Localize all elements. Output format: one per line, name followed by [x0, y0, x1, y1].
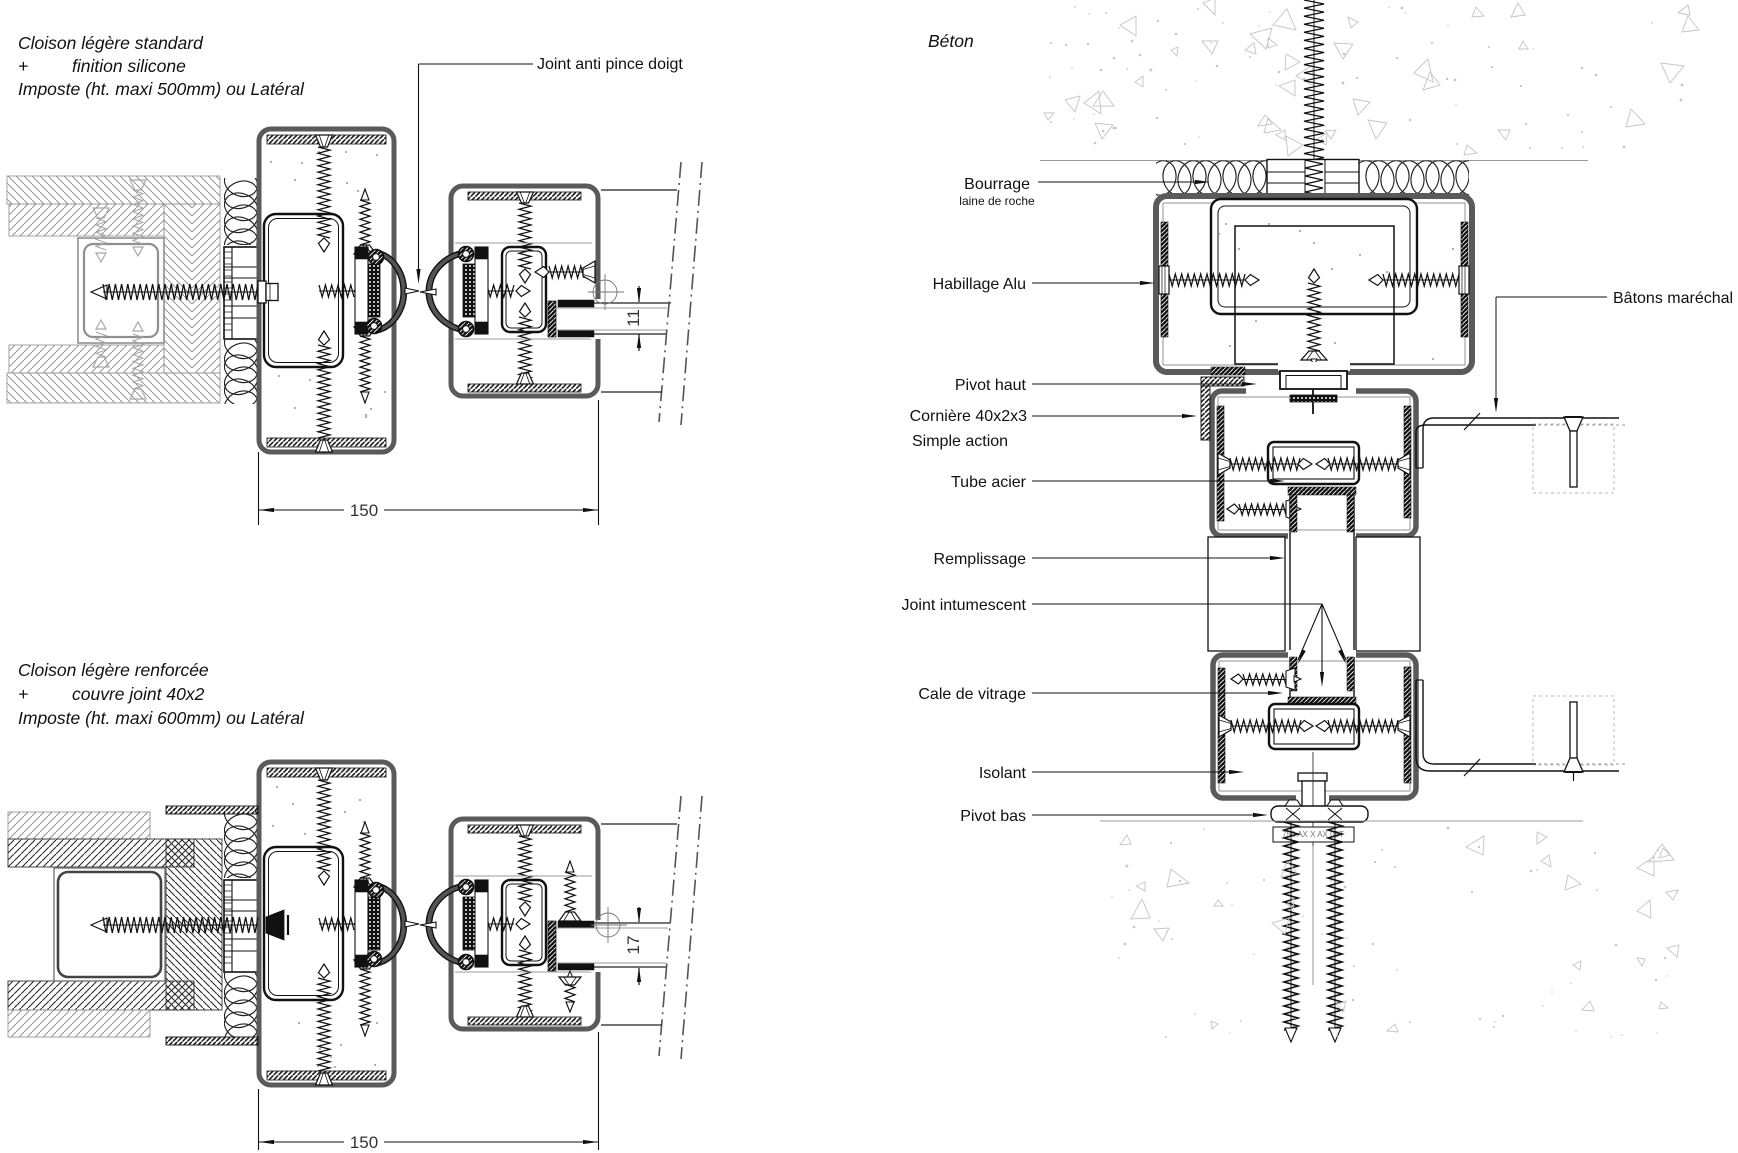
svg-text:11: 11 — [624, 309, 643, 327]
svg-text:Cornière 40x2x3: Cornière 40x2x3 — [910, 408, 1028, 425]
svg-text:Imposte (ht. maxi 500mm) ou La: Imposte (ht. maxi 500mm) ou Latéral — [18, 79, 305, 99]
svg-text:Cale de vitrage: Cale de vitrage — [918, 686, 1026, 703]
svg-text:Joint intumescent: Joint intumescent — [901, 597, 1026, 614]
svg-text:Joint anti pince doigt: Joint anti pince doigt — [537, 56, 683, 73]
svg-text:Pivot bas: Pivot bas — [960, 808, 1026, 825]
svg-text:150: 150 — [350, 501, 378, 520]
svg-text:Tube acier: Tube acier — [951, 474, 1027, 491]
svg-text:Habillage Alu: Habillage Alu — [933, 276, 1026, 293]
svg-text:+: + — [18, 684, 28, 704]
svg-text:+: + — [18, 56, 28, 76]
svg-text:finition silicone: finition silicone — [72, 56, 186, 76]
svg-text:150: 150 — [350, 1133, 378, 1152]
svg-text:couvre joint 40x2: couvre joint 40x2 — [72, 684, 205, 704]
svg-text:Bourrage: Bourrage — [964, 176, 1030, 193]
svg-text:laine de roche: laine de roche — [959, 194, 1035, 208]
svg-text:Bâtons maréchal: Bâtons maréchal — [1613, 290, 1733, 307]
svg-text:Cloison légère standard: Cloison légère standard — [18, 33, 204, 53]
svg-text:Remplissage: Remplissage — [934, 551, 1027, 568]
svg-text:Pivot haut: Pivot haut — [955, 377, 1027, 394]
svg-text:Cloison légère renforcée: Cloison légère renforcée — [18, 660, 209, 680]
svg-text:Simple action: Simple action — [912, 433, 1008, 450]
svg-text:17: 17 — [624, 936, 643, 955]
svg-text:Béton: Béton — [928, 31, 974, 51]
svg-text:Isolant: Isolant — [979, 765, 1027, 782]
svg-text:Imposte (ht. maxi 600mm) ou La: Imposte (ht. maxi 600mm) ou Latéral — [18, 708, 305, 728]
